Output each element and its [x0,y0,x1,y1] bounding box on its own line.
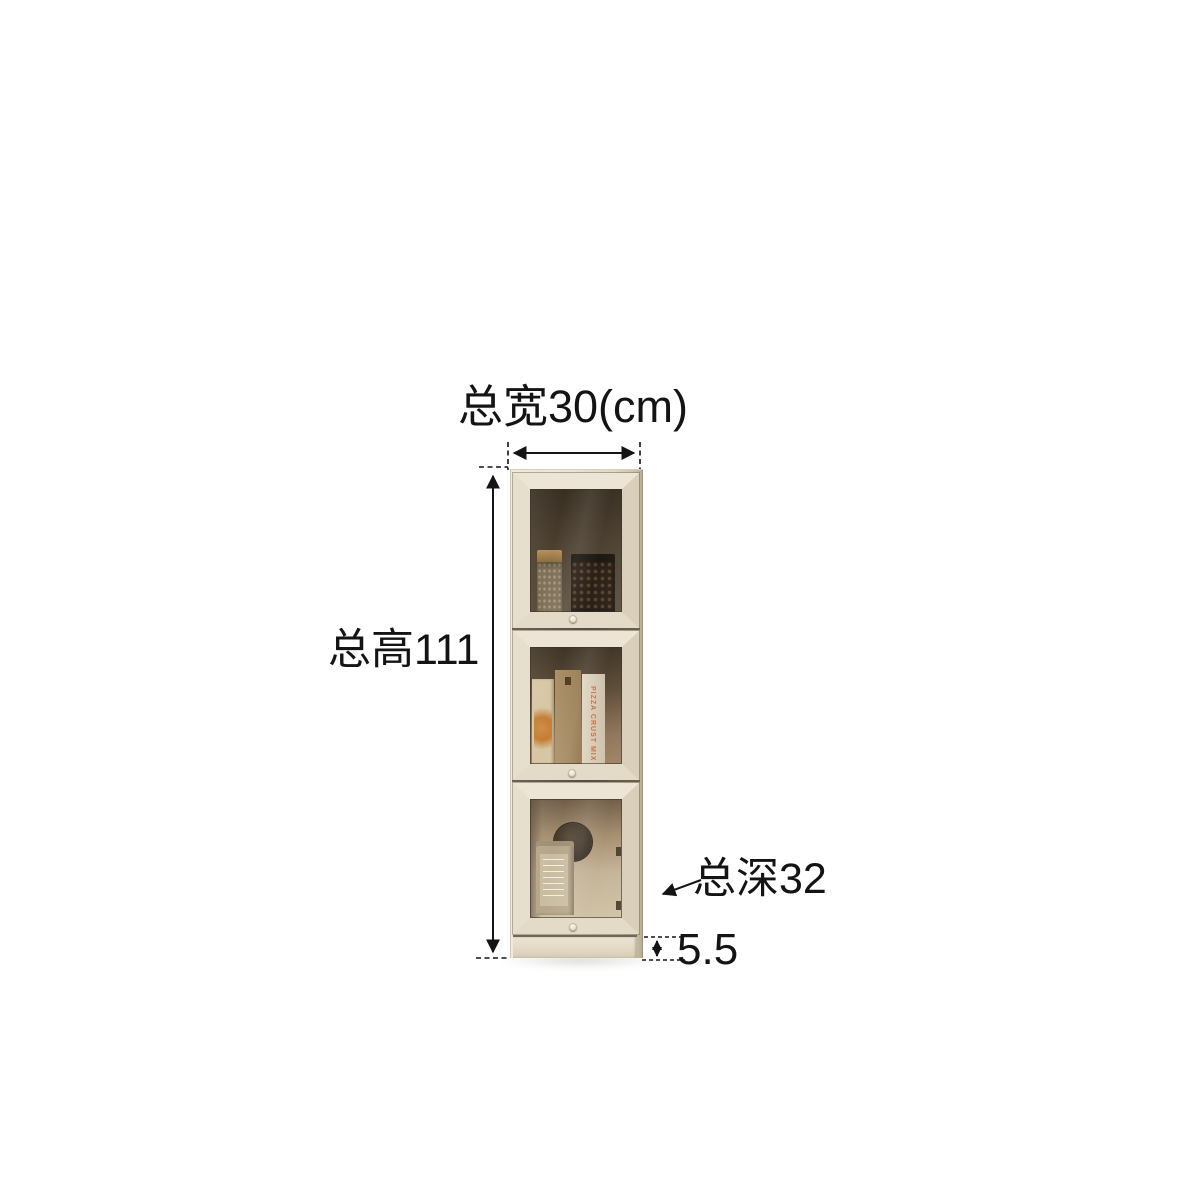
glass-pane-reflection [530,647,622,764]
base-height-dimension-label: 5.5 [677,928,738,972]
door-separator-line [512,780,640,782]
glass-pane-reflection [530,489,622,612]
glass-pane-reflection [530,799,622,918]
cabinet-door-middle: PIZZA CRUST MIX [513,631,639,780]
cabinet-door-top [513,473,639,628]
door-knob-icon [568,769,576,777]
bottom-compartment-interior [530,799,622,918]
middle-compartment-interior: PIZZA CRUST MIX [530,647,622,764]
product-dimension-diagram: 总宽30(cm) 总高111 总深32 5.5 [0,0,1200,1200]
top-compartment-interior [530,489,622,612]
door-knob-icon [569,923,577,931]
door-knob-icon [569,615,577,623]
depth-dimension-label: 总深32 [693,858,827,901]
cabinet-base-plinth [513,935,637,958]
width-dimension-label: 总宽30(cm) [423,384,723,429]
door-separator-line [512,628,640,630]
height-dimension-label: 总高111 [328,629,479,672]
cabinet-illustration: PIZZA CRUST MIX [510,469,643,958]
cabinet-door-bottom [513,783,639,934]
